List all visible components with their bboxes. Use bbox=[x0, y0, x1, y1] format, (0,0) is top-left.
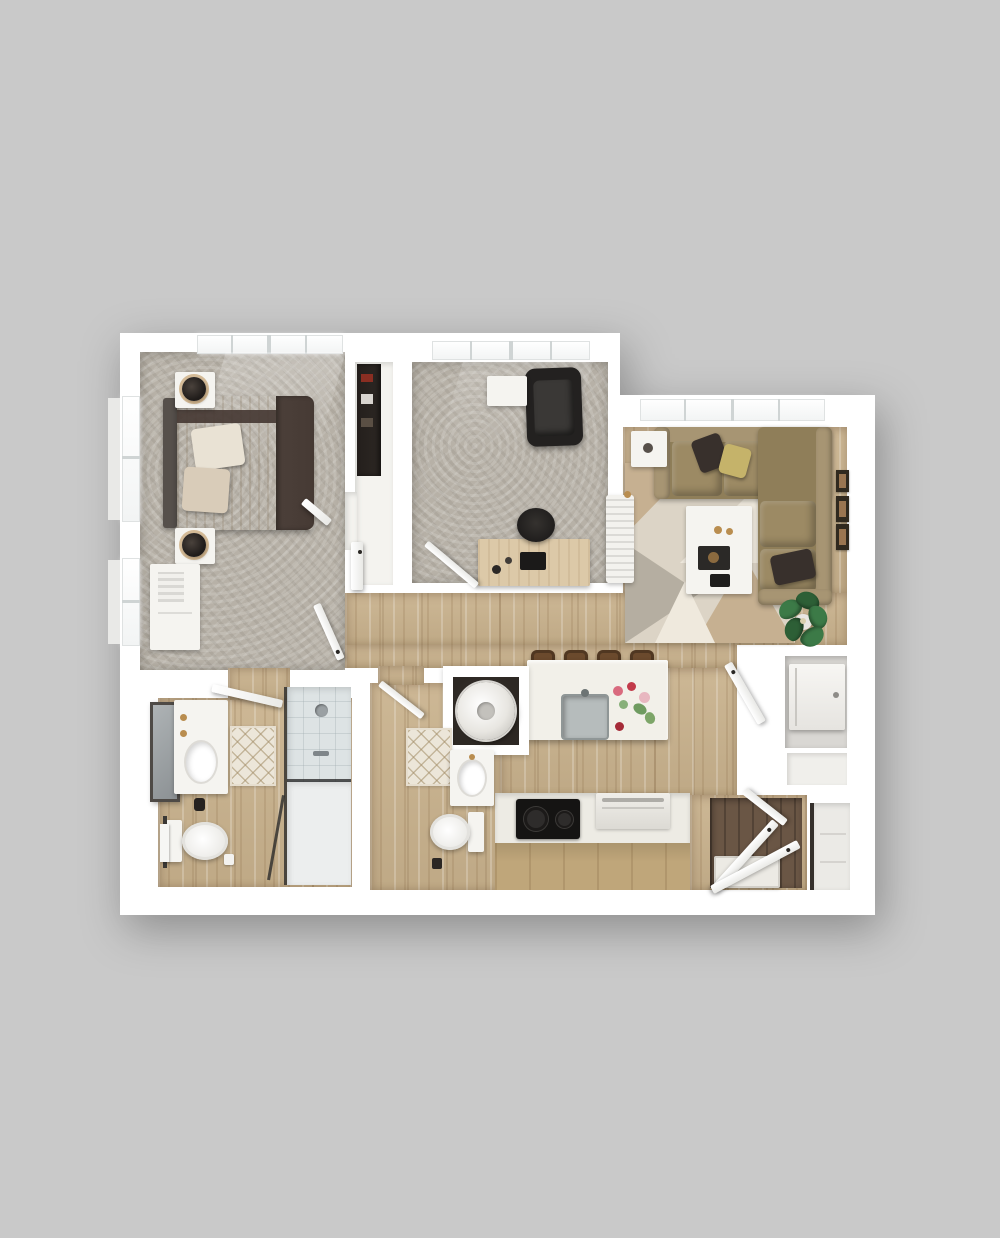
cooktop-burner bbox=[524, 807, 548, 831]
window-mullion bbox=[778, 399, 780, 421]
bath1-bin bbox=[194, 798, 205, 811]
flower-leaf bbox=[619, 700, 628, 709]
storage-closet-shelf bbox=[820, 833, 846, 835]
radiator-valve bbox=[624, 491, 631, 498]
flower-leaf bbox=[643, 711, 657, 726]
water-heater-dial bbox=[833, 692, 839, 698]
water-heater-seam bbox=[795, 668, 797, 726]
dresser-vent bbox=[158, 572, 184, 602]
bedroom-top-window bbox=[197, 335, 343, 354]
desk-accessory bbox=[492, 565, 501, 574]
bath1-faucet bbox=[180, 714, 187, 721]
living-top-window bbox=[640, 399, 825, 421]
bath1-sink bbox=[186, 742, 216, 782]
closet-shelving bbox=[357, 364, 381, 476]
table-decor-gold bbox=[714, 526, 722, 534]
wall-art-frame bbox=[836, 496, 849, 522]
window-mullion bbox=[550, 341, 552, 360]
plant-highlight bbox=[800, 618, 806, 624]
shower-glass-divider bbox=[287, 779, 351, 782]
kitchen-island bbox=[527, 660, 668, 740]
window-mullion bbox=[267, 335, 271, 354]
side-table-decor bbox=[643, 443, 653, 453]
dishwasher-seam bbox=[602, 807, 664, 809]
laptop bbox=[520, 552, 546, 570]
storage-closet-door-track bbox=[810, 803, 814, 890]
table-lamp-north bbox=[182, 377, 206, 401]
laundry-closet-interior bbox=[453, 677, 519, 745]
living-side-table bbox=[631, 431, 667, 467]
shower-controls bbox=[313, 751, 329, 756]
bath2-bin bbox=[432, 858, 442, 869]
washer-dryer bbox=[457, 682, 515, 740]
table-tray bbox=[698, 546, 730, 570]
flower bbox=[613, 686, 623, 696]
window-mullion bbox=[731, 399, 734, 421]
office-armchair bbox=[525, 367, 584, 447]
window-sill-2 bbox=[108, 560, 120, 644]
island-sink bbox=[561, 694, 609, 740]
bedroom-dresser bbox=[150, 564, 200, 650]
shower-glass-panel bbox=[284, 687, 287, 885]
armchair-cushion bbox=[533, 379, 575, 436]
bedroom-side-window-1 bbox=[122, 396, 140, 522]
radiator bbox=[606, 495, 634, 583]
table-decor-gold bbox=[726, 528, 733, 535]
window-mullion bbox=[122, 456, 140, 459]
hanging-clothes bbox=[361, 418, 373, 427]
bath1-towel bbox=[160, 824, 169, 862]
flower-arrangement bbox=[611, 682, 663, 734]
bath2-mat bbox=[406, 728, 452, 786]
storage-closet-shelf bbox=[820, 861, 846, 863]
wall-art-frame bbox=[836, 470, 849, 492]
bath1-vanity bbox=[174, 700, 228, 794]
potted-plant bbox=[778, 592, 830, 648]
table-lamp-south bbox=[182, 533, 206, 557]
coffee-table bbox=[686, 506, 752, 594]
bath2-faucet bbox=[469, 754, 475, 760]
window-mullion bbox=[509, 341, 513, 360]
shower-lower-floor bbox=[287, 782, 351, 885]
bath1-mat bbox=[230, 726, 276, 786]
shower-tile-area bbox=[287, 687, 351, 782]
hanging-clothes bbox=[361, 374, 373, 382]
window-mullion bbox=[122, 600, 140, 603]
office-chair bbox=[517, 508, 555, 542]
window-sill-1 bbox=[108, 398, 120, 520]
utility-closet-interior bbox=[785, 656, 847, 748]
office-side-table bbox=[487, 376, 527, 406]
office-desk bbox=[478, 539, 590, 586]
cooktop-burner bbox=[556, 811, 573, 828]
sofa-back-band-right bbox=[816, 427, 832, 605]
floor-plan-image bbox=[0, 0, 1000, 1238]
wall-art-frame bbox=[836, 524, 849, 550]
window-mullion bbox=[305, 335, 307, 354]
shower-drain bbox=[315, 704, 328, 717]
bath1-toilet-bowl bbox=[182, 822, 228, 860]
bath2-toilet-tank bbox=[468, 812, 484, 852]
bed-pillow-2 bbox=[182, 466, 231, 513]
dishwasher-handle bbox=[602, 798, 664, 802]
walkin-closet-door bbox=[351, 542, 363, 590]
hall-nook bbox=[787, 753, 847, 785]
washer-door-center bbox=[477, 702, 495, 720]
kitchen-cabinets bbox=[495, 843, 690, 890]
bedroom-side-window-2 bbox=[122, 558, 140, 646]
bath1-soap bbox=[180, 730, 187, 737]
bath2-toilet-bowl bbox=[430, 814, 470, 850]
storage-closet-interior bbox=[810, 803, 850, 890]
flower bbox=[615, 722, 624, 731]
window-mullion bbox=[470, 341, 472, 360]
sofa-cushion bbox=[760, 501, 816, 547]
cooktop bbox=[516, 799, 580, 839]
flower bbox=[627, 682, 636, 691]
dresser-seam bbox=[158, 612, 192, 614]
bed-headboard bbox=[163, 398, 177, 528]
desk-accessory bbox=[505, 557, 512, 564]
bath2-vanity bbox=[450, 750, 494, 806]
bath2-sink bbox=[459, 761, 485, 795]
flower bbox=[639, 692, 650, 703]
water-heater bbox=[789, 664, 845, 730]
sink-faucet bbox=[581, 689, 589, 697]
tray-bottle bbox=[708, 552, 719, 563]
remote-control bbox=[710, 574, 730, 587]
toilet-paper-holder bbox=[224, 854, 234, 865]
office-top-window bbox=[432, 341, 590, 360]
window-mullion bbox=[231, 335, 233, 354]
hanging-clothes bbox=[361, 394, 373, 404]
dishwasher bbox=[596, 793, 670, 829]
bed-pillow-1 bbox=[190, 423, 245, 472]
window-mullion bbox=[684, 399, 686, 421]
